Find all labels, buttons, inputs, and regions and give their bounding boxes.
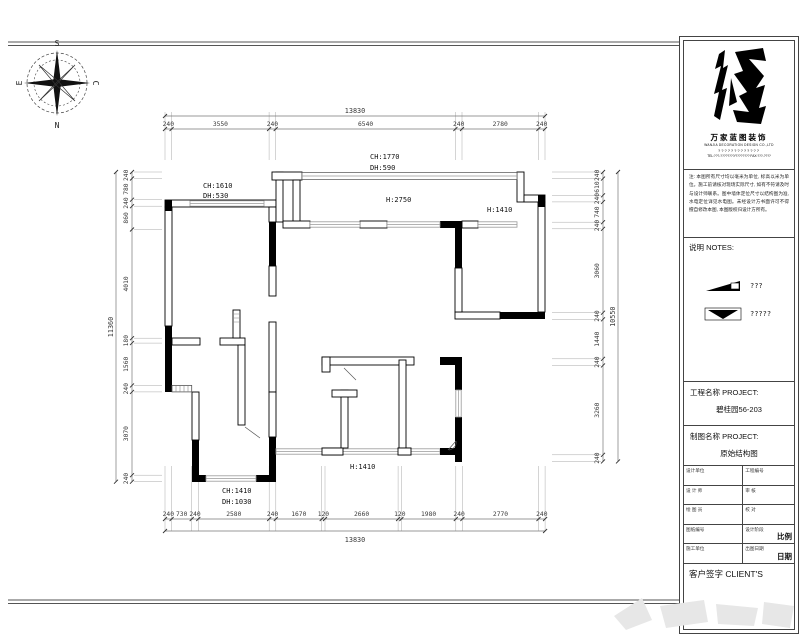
dim-label: 860 [123, 212, 130, 224]
window-spec-label: CH:1410 [222, 487, 252, 495]
project-name-value: 碧桂园56-203 [684, 404, 794, 415]
dim-label: 240 [123, 473, 130, 485]
window-spec-label: DH:1030 [222, 498, 252, 506]
drawing-name-box: 制图名称 PROJECT: 原始结构图 [684, 425, 794, 465]
dim-label: 3260 [594, 402, 601, 417]
legend-item: ??? [684, 279, 794, 293]
drawing-name-label: 制图名称 PROJECT: [684, 426, 794, 442]
client-signature-label: 客户签字 CLIENT'S [684, 564, 794, 584]
slope-symbol-icon [704, 279, 742, 293]
drawing-name-value: 原始结构图 [684, 448, 794, 459]
notes-paragraph: 注: 本图所有尺寸均以毫米为单位, 标高以米为单位。施工前请核对现场实际尺寸, … [684, 170, 794, 217]
dim-total: 11360 [107, 317, 115, 337]
dim-label: 3060 [594, 263, 601, 278]
notes-header: 说明 NOTES: [684, 238, 794, 253]
dim-label: 240 [267, 121, 279, 128]
dim-label: 740 [594, 206, 601, 218]
dim-label: 240 [594, 220, 601, 232]
compass-top-label: S [55, 39, 60, 48]
legend-label: ??? [750, 282, 763, 290]
walls-hollow [165, 172, 545, 455]
notes-box: 注: 本图所有尺寸均以毫米为单位, 标高以米为单位。施工前请核对现场实际尺寸, … [684, 169, 794, 237]
height-label: H:2750 [386, 196, 411, 204]
table-cell: 工程编号 [742, 466, 794, 485]
dim-total: 13830 [345, 107, 365, 115]
dim-label: 730 [176, 511, 188, 518]
dim-label: 610 [594, 181, 601, 193]
legend-label: ????? [750, 310, 771, 318]
dimension-chain-left: 11360 240 780 240 860 4010 180 1560 240 … [107, 169, 130, 484]
title-block-panel: 万家蓝图装饰 WANJIA DECORATION DESIGN CO.,LTD … [679, 36, 799, 634]
table-row: 施工单位 出图日期 日期 [684, 543, 794, 563]
compass-rose: S N E C [15, 39, 100, 130]
table-cell: 设 计 师 [684, 486, 742, 505]
table-cell: 设计阶段 比例 [742, 525, 794, 544]
dim-label: 120 [394, 511, 406, 518]
dim-label: 240 [594, 356, 601, 368]
height-label: H:1410 [350, 463, 375, 471]
info-table: 设计单位 工程编号 设 计 师 审 核 绘 图 员 校 对 图纸编号 设计阶段 … [684, 465, 794, 563]
dim-label: 1980 [421, 511, 436, 518]
company-line3: ????????????? [684, 148, 794, 153]
dim-label: 240 [453, 121, 465, 128]
title-block-inner: 万家蓝图装饰 WANJIA DECORATION DESIGN CO.,LTD … [683, 40, 795, 630]
dim-label: 3070 [123, 426, 130, 441]
table-cell: 审 核 [742, 486, 794, 505]
dimension-chain-top: 13830 240 3550 240 6540 240 2780 240 [163, 107, 548, 128]
dim-label: 240 [163, 511, 175, 518]
door-symbols [245, 368, 456, 450]
dim-label: 1440 [594, 331, 601, 346]
project-name-box: 工程名称 PROJECT: 碧桂园56-203 [684, 381, 794, 425]
table-row: 绘 图 员 校 对 [684, 504, 794, 524]
dim-total: 10550 [609, 306, 617, 326]
table-cell: 设计单位 [684, 466, 742, 485]
compass-left-label: E [15, 80, 24, 85]
cad-sheet: S N E C 13830 240 3550 240 6540 240 2780… [0, 0, 800, 640]
dim-total: 13830 [345, 536, 365, 544]
dim-label: 240 [453, 511, 465, 518]
table-cell-text: 出图日期 [745, 546, 763, 552]
window-spec-label: DH:590 [370, 164, 395, 172]
client-signature-box: 客户签字 CLIENT'S [684, 563, 794, 629]
dimension-chain-bottom: 13830 240 730 240 2580 240 1670 120 2660… [163, 511, 548, 544]
dim-label: 240 [594, 310, 601, 322]
dim-label: 6540 [358, 121, 373, 128]
dim-label: 240 [123, 197, 130, 209]
table-cell: 校 对 [742, 505, 794, 524]
table-cell: 出图日期 日期 [742, 544, 794, 563]
dim-label: 2770 [493, 511, 508, 518]
dim-label: 240 [594, 169, 601, 181]
window-spec-label: DH:530 [203, 192, 228, 200]
table-row: 设计单位 工程编号 [684, 466, 794, 485]
table-cell: 绘 图 员 [684, 505, 742, 524]
company-name-cn: 万家蓝图装饰 [684, 132, 794, 143]
dim-label: 240 [123, 169, 130, 181]
dim-label: 2660 [354, 511, 369, 518]
legend-item: ????? [684, 307, 794, 321]
dim-label: 240 [536, 121, 548, 128]
dim-label: 240 [189, 511, 201, 518]
dim-label: 780 [123, 183, 130, 195]
dim-label: 240 [594, 193, 601, 205]
dim-label: 1560 [123, 357, 130, 372]
dim-label: 240 [594, 452, 601, 464]
dim-label: 2780 [493, 121, 508, 128]
company-name-en: WANJIA DECORATION DESIGN CO.,LTD [684, 143, 794, 147]
window-spec-label: CH:1770 [370, 153, 400, 161]
compass-right-label: C [91, 81, 100, 86]
dim-label: 2580 [226, 511, 241, 518]
logo-box: 万家蓝图装饰 WANJIA DECORATION DESIGN CO.,LTD … [684, 41, 794, 169]
dim-label: 240 [123, 383, 130, 395]
table-cell-text: 设计阶段 [745, 527, 763, 533]
table-bold-text: 日期 [777, 551, 792, 562]
dim-label: 1670 [291, 511, 306, 518]
compass-bottom-label: N [55, 121, 60, 130]
company-logo-icon [709, 48, 769, 126]
dim-label: 240 [163, 121, 175, 128]
dim-label: 180 [123, 335, 130, 347]
dim-label: 4010 [123, 276, 130, 291]
dim-label: 240 [536, 511, 548, 518]
table-row: 设 计 师 审 核 [684, 485, 794, 505]
table-row: 图纸编号 设计阶段 比例 [684, 524, 794, 544]
dimension-chain-right: 10550 240 610 240 740 240 3060 240 1440 … [594, 169, 617, 463]
height-label: H:1410 [487, 206, 512, 214]
table-cell: 图纸编号 [684, 525, 742, 544]
dim-label: 3550 [213, 121, 228, 128]
window-spec-label: CH:1610 [203, 182, 233, 190]
table-bold-text: 比例 [777, 531, 792, 542]
table-cell: 施工单位 [684, 544, 742, 563]
valley-symbol-icon [704, 307, 742, 321]
company-line4: TEL:???-????????/???????? FAX:???-???? [684, 154, 794, 158]
project-name-label: 工程名称 PROJECT: [684, 382, 794, 398]
legend-box: 说明 NOTES: ??? ????? [684, 237, 794, 381]
dim-label: 240 [267, 511, 279, 518]
dim-label: 120 [318, 511, 330, 518]
